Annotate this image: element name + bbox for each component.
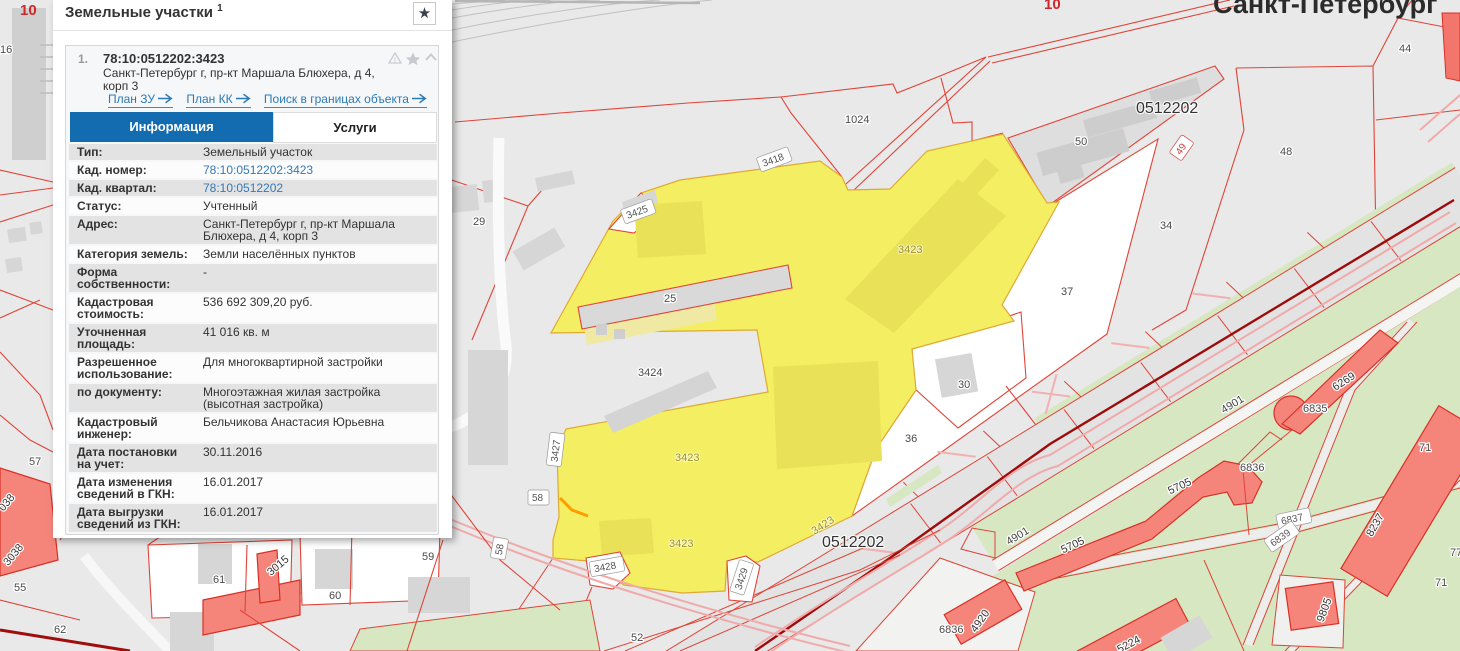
svg-text:52: 52 <box>631 632 643 644</box>
svg-text:36: 36 <box>905 433 917 445</box>
svg-text:50: 50 <box>1075 136 1087 148</box>
svg-text:6836: 6836 <box>939 624 963 636</box>
svg-text:10: 10 <box>1044 0 1061 13</box>
svg-text:0512202: 0512202 <box>1136 100 1198 117</box>
svg-text:77: 77 <box>1450 547 1460 559</box>
svg-text:25: 25 <box>664 293 676 305</box>
svg-text:62: 62 <box>54 624 66 636</box>
svg-text:3423: 3423 <box>675 452 699 464</box>
svg-text:58: 58 <box>532 493 544 504</box>
svg-text:37: 37 <box>1061 286 1073 298</box>
svg-text:0512202: 0512202 <box>822 534 884 551</box>
svg-text:44: 44 <box>1399 43 1411 55</box>
svg-text:71: 71 <box>1419 442 1431 454</box>
svg-text:Санкт-Петербург: Санкт-Петербург <box>1213 0 1437 19</box>
svg-text:59: 59 <box>422 551 434 563</box>
svg-text:3423: 3423 <box>898 244 922 256</box>
svg-text:16: 16 <box>0 44 12 56</box>
svg-text:6836: 6836 <box>1240 462 1264 474</box>
svg-text:71: 71 <box>1435 577 1447 589</box>
svg-text:1024: 1024 <box>845 114 869 126</box>
svg-text:6835: 6835 <box>1303 403 1327 415</box>
svg-text:60: 60 <box>329 590 341 602</box>
svg-text:30: 30 <box>958 379 970 391</box>
svg-text:10: 10 <box>20 2 37 19</box>
svg-text:29: 29 <box>473 216 485 228</box>
svg-text:!: ! <box>394 58 396 65</box>
svg-text:57: 57 <box>29 456 41 468</box>
svg-text:34: 34 <box>1160 220 1172 232</box>
svg-text:55: 55 <box>14 582 26 594</box>
svg-text:48: 48 <box>1280 146 1292 158</box>
svg-text:3424: 3424 <box>638 367 662 379</box>
svg-text:61: 61 <box>213 574 225 586</box>
svg-text:3423: 3423 <box>669 538 693 550</box>
